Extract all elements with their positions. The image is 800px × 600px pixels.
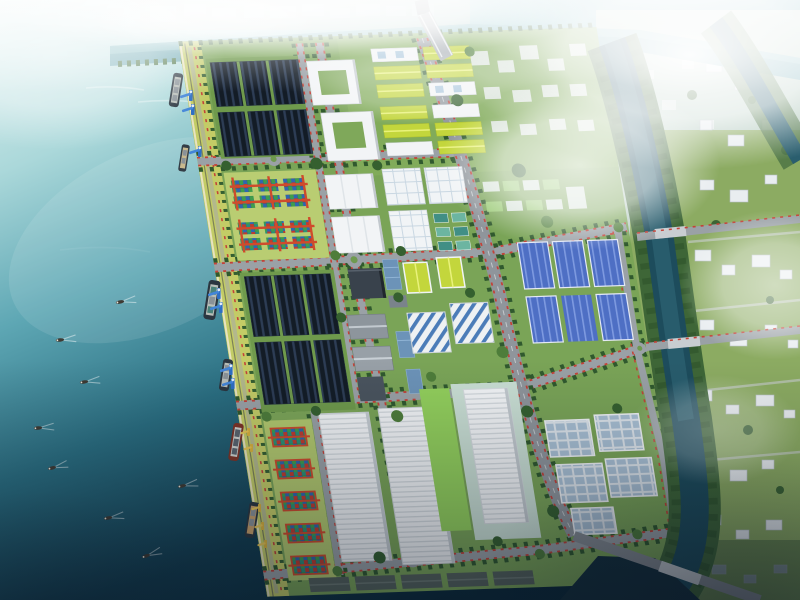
rendering-stage bbox=[0, 0, 800, 600]
vignette bbox=[0, 0, 800, 600]
masterplan-rendering bbox=[0, 0, 800, 600]
